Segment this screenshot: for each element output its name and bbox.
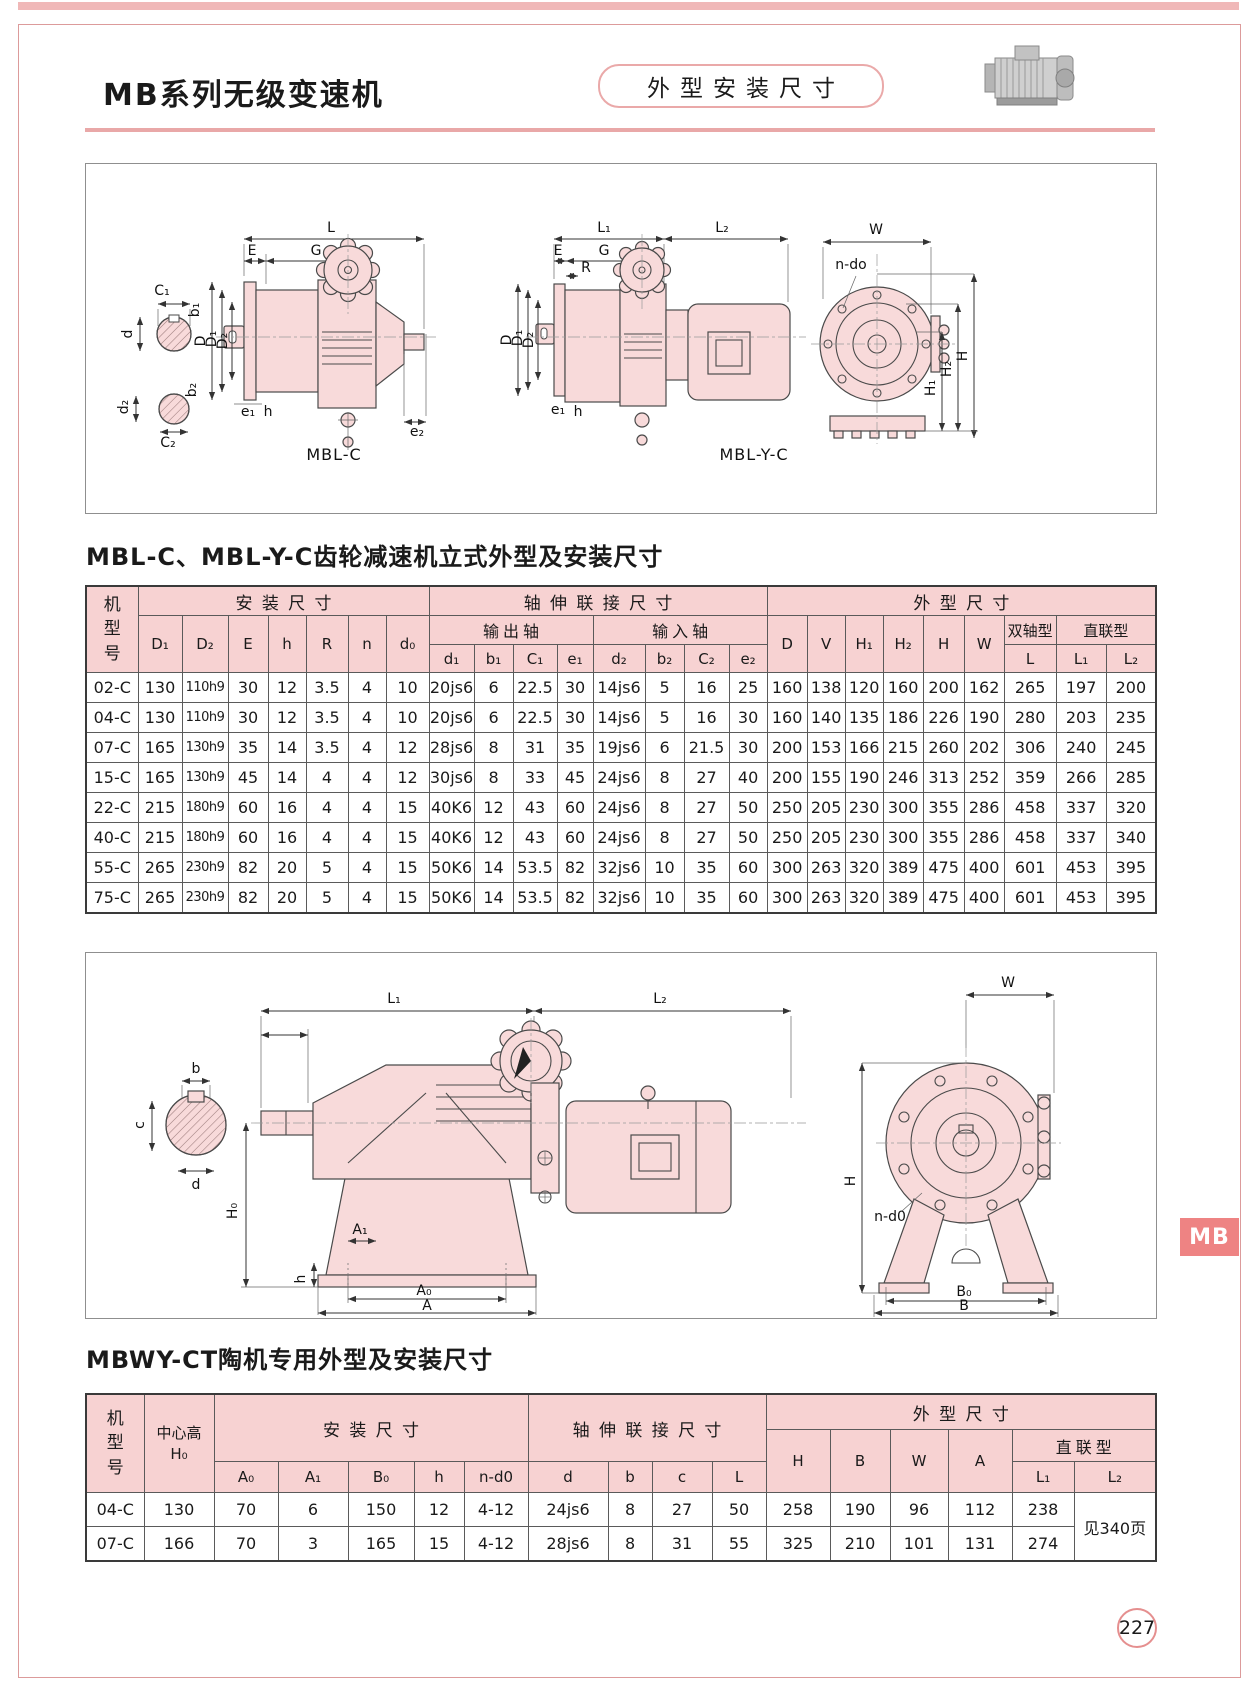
- dim-label-d: d: [192, 1177, 201, 1193]
- model-cell: 75-C: [86, 883, 138, 914]
- header-rule: [85, 128, 1155, 132]
- value-cell: 15: [386, 823, 429, 853]
- value-cell: 12: [268, 673, 306, 703]
- dim-label-nd0: n-d0: [874, 1209, 906, 1225]
- value-cell: 12: [474, 793, 513, 823]
- value-cell: 266: [1056, 763, 1106, 793]
- value-cell: 286: [964, 823, 1004, 853]
- dim-label-H: H: [843, 1176, 859, 1187]
- value-cell: 160: [767, 703, 807, 733]
- value-cell: 15: [386, 793, 429, 823]
- value-cell: 50K6: [429, 853, 474, 883]
- value-cell: 180h9: [182, 793, 228, 823]
- dim-label-b1: b₁: [187, 303, 203, 318]
- dim-label-c1: C₁: [154, 283, 169, 299]
- column-group-shaft: 轴伸联接尺寸: [429, 586, 767, 616]
- value-cell: 250: [767, 793, 807, 823]
- figure1-panel: C₁ b₁ d b₂ d₂ C₂: [85, 163, 1157, 514]
- column-header: d₁: [429, 645, 474, 673]
- dim-label-L2: L₂: [653, 991, 666, 1007]
- value-cell: 4: [348, 763, 386, 793]
- value-cell: 14: [474, 853, 513, 883]
- motor-body: [985, 46, 1074, 105]
- column-group-direct: 直联型: [1056, 616, 1156, 645]
- value-cell: 186: [883, 703, 923, 733]
- value-cell: 320: [845, 883, 883, 914]
- value-cell: 337: [1056, 793, 1106, 823]
- value-cell: 230h9: [182, 883, 228, 914]
- value-cell: 130: [144, 1493, 214, 1527]
- model-cell: 04-C: [86, 703, 138, 733]
- value-cell: 300: [767, 853, 807, 883]
- value-cell: 20: [268, 853, 306, 883]
- column-header: h: [414, 1462, 464, 1493]
- table-row: 07-C 166 70 3 165 15 4-12 28js6 8 31 55 …: [86, 1527, 1156, 1562]
- value-cell: 263: [807, 883, 845, 914]
- value-cell: 24js6: [593, 793, 645, 823]
- value-cell: 22.5: [513, 703, 557, 733]
- value-cell: 16: [268, 823, 306, 853]
- value-cell: 453: [1056, 853, 1106, 883]
- value-cell: 285: [1106, 763, 1156, 793]
- dim-label-E: E: [554, 243, 563, 259]
- table-row: 07-C165130h935143.541228js68313519js6621…: [86, 733, 1156, 763]
- value-cell: 33: [513, 763, 557, 793]
- value-cell: 12: [268, 703, 306, 733]
- value-cell: 131: [948, 1527, 1012, 1562]
- value-cell: 4: [348, 883, 386, 914]
- center-height-label: 中心高: [145, 1423, 214, 1443]
- figure-caption-mblc: MBL-C: [306, 445, 361, 464]
- value-cell: 160: [883, 673, 923, 703]
- value-cell: 27: [684, 763, 729, 793]
- value-cell: 5: [645, 703, 684, 733]
- value-cell: 340: [1106, 823, 1156, 853]
- value-cell: 50: [729, 793, 767, 823]
- value-cell: 82: [228, 853, 268, 883]
- value-cell: 14js6: [593, 703, 645, 733]
- value-cell: 300: [767, 883, 807, 914]
- value-cell: 215: [138, 793, 182, 823]
- column-group-double-shaft: 双轴型: [1004, 616, 1056, 645]
- top-decor-band: [18, 2, 1239, 10]
- column-header: A₀: [214, 1462, 278, 1493]
- value-cell: 6: [474, 703, 513, 733]
- model-cell: 07-C: [86, 1527, 144, 1562]
- value-cell: 4-12: [464, 1527, 528, 1562]
- value-cell: 35: [684, 883, 729, 914]
- value-cell: 10: [386, 673, 429, 703]
- column-header: L₁: [1012, 1462, 1074, 1493]
- value-cell: 5: [306, 883, 348, 914]
- dim-label-D2: D₂: [215, 333, 231, 349]
- value-cell: 82: [228, 883, 268, 914]
- column-header: b₁: [474, 645, 513, 673]
- value-cell: 203: [1056, 703, 1106, 733]
- value-cell: 4: [348, 793, 386, 823]
- value-cell: 389: [883, 853, 923, 883]
- model-cell: 15-C: [86, 763, 138, 793]
- value-cell: 24js6: [593, 823, 645, 853]
- value-cell: 12: [386, 733, 429, 763]
- value-cell: 35: [684, 853, 729, 883]
- value-cell: 50: [729, 823, 767, 853]
- value-cell: 8: [474, 733, 513, 763]
- section-badge-label: 外型安装尺寸: [637, 69, 845, 103]
- value-cell: 165: [138, 733, 182, 763]
- model-cell: 55-C: [86, 853, 138, 883]
- value-cell: 210: [830, 1527, 890, 1562]
- value-cell: 235: [1106, 703, 1156, 733]
- dim-label-d2: d₂: [116, 400, 132, 415]
- value-cell: 101: [890, 1527, 948, 1562]
- value-cell: 55: [712, 1527, 766, 1562]
- table-row: 04-C130110h930123.541020js6622.53014js65…: [86, 703, 1156, 733]
- mbwy-side-view: [241, 1011, 806, 1315]
- column-header: n-d0: [464, 1462, 528, 1493]
- dim-label-b2: b₂: [184, 383, 200, 398]
- value-cell: 252: [964, 763, 1004, 793]
- table1-title: MBL-C、MBL-Y-C齿轮减速机立式外型及安装尺寸: [86, 537, 663, 572]
- value-cell: 306: [1004, 733, 1056, 763]
- value-cell: 4-12: [464, 1493, 528, 1527]
- value-cell: 155: [807, 763, 845, 793]
- value-cell: 12: [386, 763, 429, 793]
- value-cell: 4: [348, 703, 386, 733]
- value-cell: 359: [1004, 763, 1056, 793]
- value-cell: 138: [807, 673, 845, 703]
- value-cell: 130: [138, 703, 182, 733]
- table1-body: 02-C130110h930123.541020js6622.53014js65…: [86, 673, 1156, 914]
- value-cell: 197: [1056, 673, 1106, 703]
- value-cell: 82: [557, 883, 593, 914]
- value-cell: 20js6: [429, 673, 474, 703]
- column-header: D₁: [138, 616, 182, 673]
- column-header: b₂: [645, 645, 684, 673]
- value-cell: 395: [1106, 853, 1156, 883]
- column-group-outline: 外型尺寸: [767, 586, 1156, 616]
- value-cell: 130h9: [182, 733, 228, 763]
- value-cell: 12: [474, 823, 513, 853]
- value-cell: 6: [474, 673, 513, 703]
- table-row: 22-C215180h96016441540K612436024js682750…: [86, 793, 1156, 823]
- column-header: e₂: [729, 645, 767, 673]
- value-cell: 110h9: [182, 703, 228, 733]
- column-header: h: [268, 616, 306, 673]
- dim-label-c2: C₂: [160, 435, 175, 451]
- value-cell: 21.5: [684, 733, 729, 763]
- column-header: E: [228, 616, 268, 673]
- value-cell: 43: [513, 823, 557, 853]
- value-cell: 30: [228, 703, 268, 733]
- figure2-drawing: b c d: [86, 953, 1156, 1318]
- value-cell: 4: [306, 763, 348, 793]
- value-cell: 45: [557, 763, 593, 793]
- value-cell: 14: [268, 763, 306, 793]
- dim-label-d: d: [120, 330, 136, 339]
- value-cell: 150: [348, 1493, 414, 1527]
- value-cell: 50: [712, 1493, 766, 1527]
- column-header-model: 机型号: [86, 586, 138, 673]
- value-cell: 32js6: [593, 853, 645, 883]
- column-header: b: [608, 1462, 652, 1493]
- table-row: 02-C130110h930123.541020js6622.53014js65…: [86, 673, 1156, 703]
- value-cell: 25: [729, 673, 767, 703]
- value-cell: 53.5: [513, 883, 557, 914]
- value-cell: 3.5: [306, 703, 348, 733]
- value-cell: 14: [474, 883, 513, 914]
- value-cell: 60: [729, 883, 767, 914]
- value-cell: 205: [807, 793, 845, 823]
- value-cell: 16: [268, 793, 306, 823]
- value-cell: 320: [1106, 793, 1156, 823]
- value-cell: 50K6: [429, 883, 474, 914]
- dim-label-E: E: [248, 243, 257, 259]
- value-cell: 8: [474, 763, 513, 793]
- value-cell: 30js6: [429, 763, 474, 793]
- value-cell: 320: [845, 853, 883, 883]
- value-cell: 3.5: [306, 673, 348, 703]
- value-cell: 3: [278, 1527, 348, 1562]
- value-cell: 16: [684, 673, 729, 703]
- value-cell: 10: [386, 703, 429, 733]
- value-cell: 200: [923, 673, 964, 703]
- dim-label-L: L: [327, 220, 335, 236]
- value-cell: 4: [348, 823, 386, 853]
- value-cell: 30: [729, 703, 767, 733]
- dim-label-G: G: [311, 243, 322, 259]
- shaft-section-upper: [140, 304, 191, 351]
- value-cell: 5: [306, 853, 348, 883]
- dim-label-H0: H₀: [225, 1203, 241, 1220]
- dim-label-A0: A₀: [416, 1283, 432, 1299]
- value-cell: 31: [652, 1527, 712, 1562]
- figure1-drawing: C₁ b₁ d b₂ d₂ C₂: [86, 164, 1156, 513]
- value-cell: 24js6: [593, 763, 645, 793]
- value-cell: 274: [1012, 1527, 1074, 1562]
- value-cell: 4: [348, 673, 386, 703]
- side-tab-mb: MB: [1180, 1218, 1239, 1256]
- page-title: MB系列无级变速机: [103, 70, 384, 114]
- value-cell: 28js6: [528, 1527, 608, 1562]
- dim-label-A1: A₁: [352, 1222, 367, 1238]
- column-header: B₀: [348, 1462, 414, 1493]
- value-cell: 82: [557, 853, 593, 883]
- value-cell: 30: [557, 673, 593, 703]
- motor-photo-icon: [975, 40, 1090, 118]
- column-header: C₂: [684, 645, 729, 673]
- value-cell: 180h9: [182, 823, 228, 853]
- column-header-center-height: 中心高 H₀: [144, 1394, 214, 1493]
- value-cell: 8: [645, 793, 684, 823]
- value-cell: 601: [1004, 883, 1056, 914]
- value-cell: 258: [766, 1493, 830, 1527]
- dimension-table-mbwy: 机型号 中心高 H₀ 安装尺寸 轴伸联接尺寸 外型尺寸 H B W A 直联型 …: [85, 1393, 1157, 1562]
- dim-label-A: A: [422, 1298, 432, 1314]
- table2-title: MBWY-CT陶机专用外型及安装尺寸: [86, 1340, 493, 1375]
- value-cell: 30: [729, 733, 767, 763]
- value-cell: 28js6: [429, 733, 474, 763]
- figure-caption-mblyc: MBL-Y-C: [719, 445, 788, 464]
- column-header: d: [528, 1462, 608, 1493]
- value-cell: 238: [1012, 1493, 1074, 1527]
- value-cell: 5: [645, 673, 684, 703]
- value-cell: 3.5: [306, 733, 348, 763]
- value-cell: 140: [807, 703, 845, 733]
- value-cell: 43: [513, 793, 557, 823]
- value-cell: 15: [386, 883, 429, 914]
- value-cell: 35: [228, 733, 268, 763]
- value-cell: 200: [767, 763, 807, 793]
- column-header: C₁: [513, 645, 557, 673]
- value-cell: 190: [964, 703, 1004, 733]
- value-cell: 475: [923, 853, 964, 883]
- dim-label-L2: L₂: [715, 220, 728, 236]
- value-cell: 190: [845, 763, 883, 793]
- value-cell: 166: [845, 733, 883, 763]
- value-cell: 8: [645, 823, 684, 853]
- dimension-table-mbl: 机型号 安装尺寸 轴伸联接尺寸 外型尺寸 D₁ D₂ E h R n d₀ 输出…: [85, 585, 1157, 914]
- value-cell: 265: [1004, 673, 1056, 703]
- value-cell: 130h9: [182, 763, 228, 793]
- value-cell: 165: [348, 1527, 414, 1562]
- value-cell: 16: [684, 703, 729, 733]
- value-cell: 60: [729, 853, 767, 883]
- column-header: W: [890, 1430, 948, 1493]
- dim-label-D2: D₂: [521, 332, 537, 348]
- value-cell: 27: [684, 823, 729, 853]
- column-group-outline: 外型尺寸: [766, 1394, 1156, 1430]
- column-header: L₂: [1106, 645, 1156, 673]
- column-group-input-shaft: 输入轴: [593, 616, 767, 645]
- value-cell: 70: [214, 1527, 278, 1562]
- dim-label-L1: L₁: [597, 220, 610, 236]
- value-cell: 230: [845, 823, 883, 853]
- column-header: B: [830, 1430, 890, 1493]
- value-cell: 166: [144, 1527, 214, 1562]
- value-cell: 190: [830, 1493, 890, 1527]
- value-cell: 8: [608, 1527, 652, 1562]
- shaft-section: [152, 1081, 226, 1171]
- value-cell: 286: [964, 793, 1004, 823]
- value-cell: 263: [807, 853, 845, 883]
- value-cell: 130: [138, 673, 182, 703]
- value-cell: 4: [306, 823, 348, 853]
- dim-label-B: B: [959, 1298, 969, 1314]
- value-cell: 20js6: [429, 703, 474, 733]
- value-cell: 162: [964, 673, 1004, 703]
- column-header: H₂: [883, 616, 923, 673]
- value-cell: 20: [268, 883, 306, 914]
- center-height-symbol: H₀: [145, 1444, 214, 1464]
- column-header: D₂: [182, 616, 228, 673]
- page-number: 227: [1119, 1617, 1155, 1639]
- value-cell: 475: [923, 883, 964, 914]
- value-cell: 240: [1056, 733, 1106, 763]
- value-cell: 230: [845, 793, 883, 823]
- value-cell: 280: [1004, 703, 1056, 733]
- value-cell: 601: [1004, 853, 1056, 883]
- value-cell: 400: [964, 853, 1004, 883]
- value-cell: 6: [645, 733, 684, 763]
- mbwy-front-view: [862, 995, 1061, 1317]
- dim-label-h: h: [264, 404, 273, 420]
- value-cell: 265: [138, 853, 182, 883]
- value-cell: 112: [948, 1493, 1012, 1527]
- dim-label-h: h: [574, 404, 583, 420]
- dim-label-h: h: [293, 1275, 309, 1284]
- value-cell: 14js6: [593, 673, 645, 703]
- value-cell: 6: [278, 1493, 348, 1527]
- value-cell: 250: [767, 823, 807, 853]
- value-cell: 165: [138, 763, 182, 793]
- dim-label-e2: e₂: [410, 424, 424, 440]
- column-group-direct: 直联型: [1012, 1430, 1156, 1462]
- value-cell: 27: [652, 1493, 712, 1527]
- value-cell: 10: [645, 883, 684, 914]
- value-cell: 226: [923, 703, 964, 733]
- dim-label-G: G: [599, 243, 610, 259]
- table-row: 55-C265230h98220541550K61453.58232js6103…: [86, 853, 1156, 883]
- column-group-output-shaft: 输出轴: [429, 616, 593, 645]
- column-group-install: 安装尺寸: [214, 1394, 528, 1462]
- value-cell: 27: [684, 793, 729, 823]
- dim-label-b: b: [192, 1061, 201, 1077]
- column-group-install: 安装尺寸: [138, 586, 429, 616]
- column-header: R: [306, 616, 348, 673]
- value-cell: 153: [807, 733, 845, 763]
- dim-label-H: H: [955, 351, 971, 362]
- value-cell: 4: [348, 733, 386, 763]
- table-row: 40-C215180h96016441540K612436024js682750…: [86, 823, 1156, 853]
- value-cell: 32js6: [593, 883, 645, 914]
- value-cell: 15: [414, 1527, 464, 1562]
- value-cell: 19js6: [593, 733, 645, 763]
- shaft-section-lower: [136, 394, 189, 432]
- value-cell: 96: [890, 1493, 948, 1527]
- column-header: d₀: [386, 616, 429, 673]
- column-header: H₁: [845, 616, 883, 673]
- column-header: A: [948, 1430, 1012, 1493]
- column-header: L₁: [1056, 645, 1106, 673]
- value-cell: 325: [766, 1527, 830, 1562]
- section-badge: 外型安装尺寸: [598, 64, 884, 108]
- dim-label-L1: L₁: [387, 991, 400, 1007]
- column-header: L: [712, 1462, 766, 1493]
- dim-label-W: W: [869, 222, 883, 238]
- column-header: H: [923, 616, 964, 673]
- value-cell: 30: [557, 703, 593, 733]
- value-cell: 205: [807, 823, 845, 853]
- value-cell: 265: [138, 883, 182, 914]
- dim-label-H1: H₁: [923, 380, 939, 396]
- dim-label-e1: e₁: [551, 402, 565, 418]
- table2-body: 04-C 130 70 6 150 12 4-12 24js6 8 27 50 …: [86, 1493, 1156, 1562]
- value-cell: 337: [1056, 823, 1106, 853]
- column-header: L: [1004, 645, 1056, 673]
- table-row: 15-C165130h94514441230js68334524js682740…: [86, 763, 1156, 793]
- value-cell: 389: [883, 883, 923, 914]
- value-cell: 355: [923, 823, 964, 853]
- dim-label-c: c: [132, 1121, 148, 1129]
- value-cell: 14: [268, 733, 306, 763]
- value-cell: 260: [923, 733, 964, 763]
- value-cell: 355: [923, 793, 964, 823]
- value-cell: 458: [1004, 823, 1056, 853]
- column-header: V: [807, 616, 845, 673]
- dim-label-ndo: n-do: [835, 257, 866, 273]
- column-header: n: [348, 616, 386, 673]
